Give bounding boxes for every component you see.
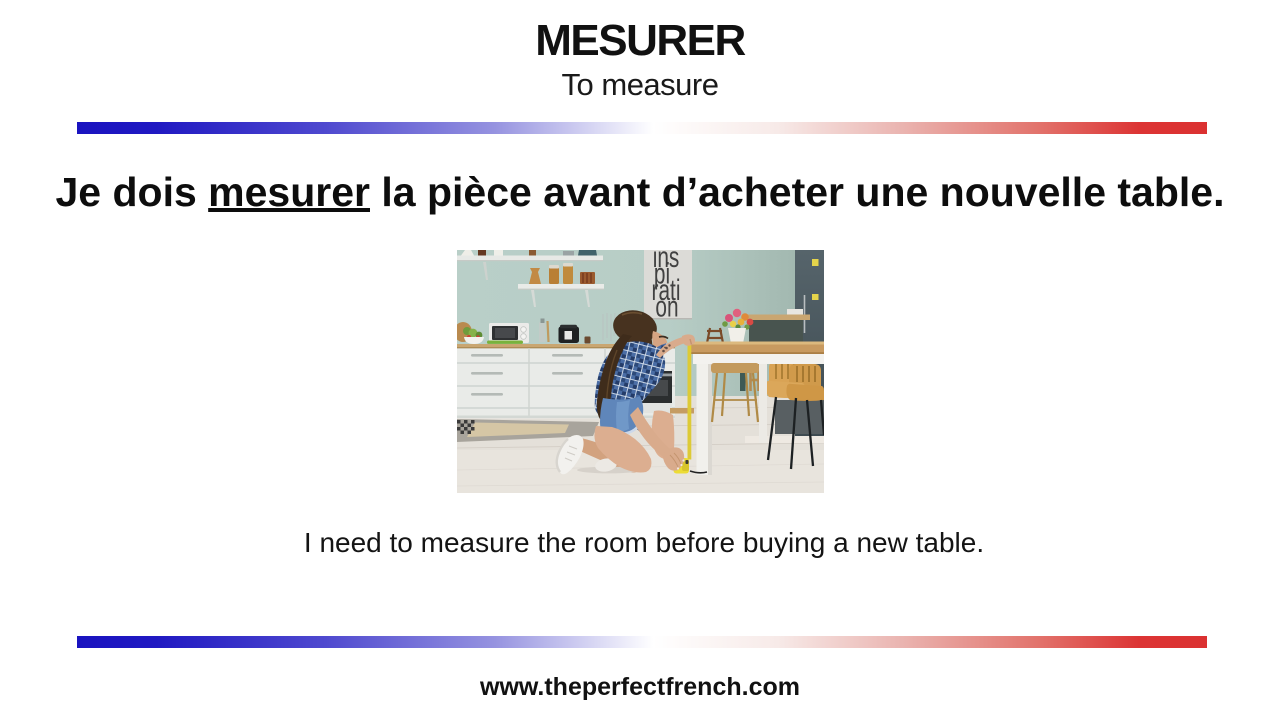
svg-text:on: on [655,291,678,324]
